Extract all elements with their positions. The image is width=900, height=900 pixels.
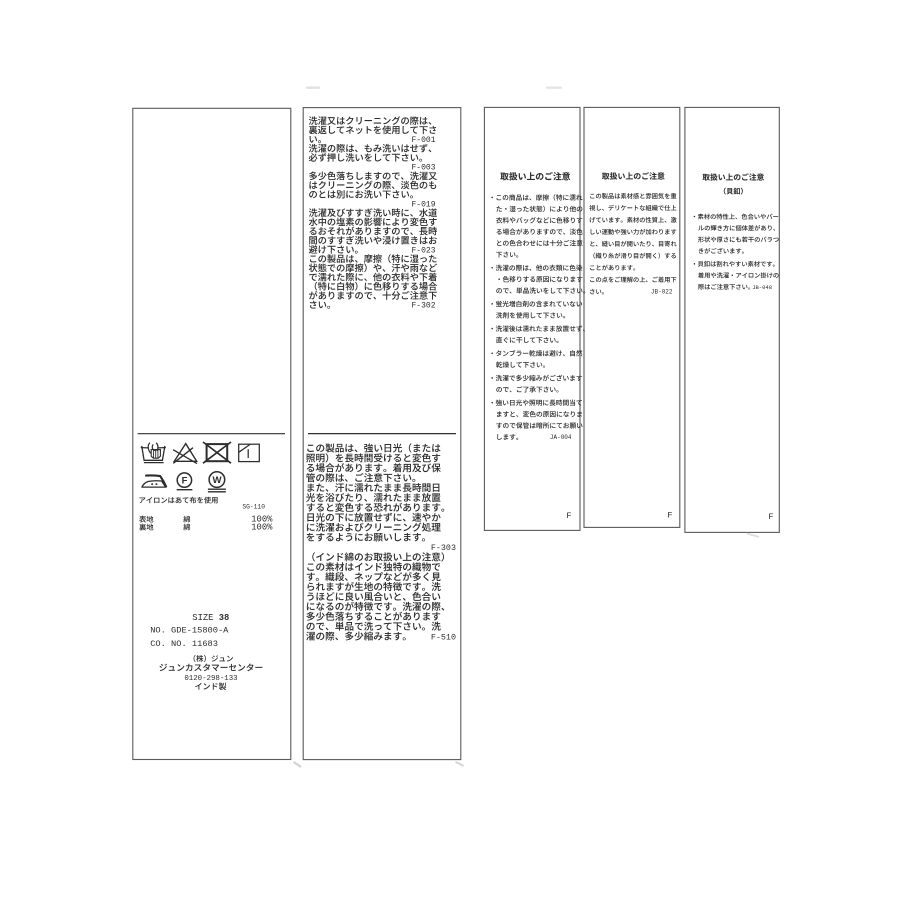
svg-text:F-303: F-303 [431,543,456,553]
svg-text:F-001: F-001 [411,136,435,145]
svg-text:F-510: F-510 [431,632,456,642]
svg-text:JB-048: JB-048 [752,284,772,291]
svg-text:F-023: F-023 [411,247,435,256]
svg-text:SG-110: SG-110 [242,504,265,511]
svg-text:100%: 100% [251,522,273,532]
svg-text:0120-298-133: 0120-298-133 [184,675,237,683]
svg-text:NO. GDE-15800-A: NO. GDE-15800-A [150,625,229,635]
svg-text:F: F [182,474,188,485]
svg-text:F-302: F-302 [411,302,435,311]
svg-text:CO. NO. 11683: CO. NO. 11683 [150,639,218,649]
svg-text:F-019: F-019 [411,201,435,210]
svg-text:JA-004: JA-004 [550,434,572,441]
svg-text:F-003: F-003 [411,164,435,173]
svg-text:F: F [768,512,773,522]
svg-text:SIZE 38: SIZE 38 [192,613,229,623]
svg-text:JB-022: JB-022 [651,289,673,296]
svg-text:W: W [212,475,222,486]
svg-text:F: F [566,511,571,521]
svg-text:F: F [667,511,672,521]
